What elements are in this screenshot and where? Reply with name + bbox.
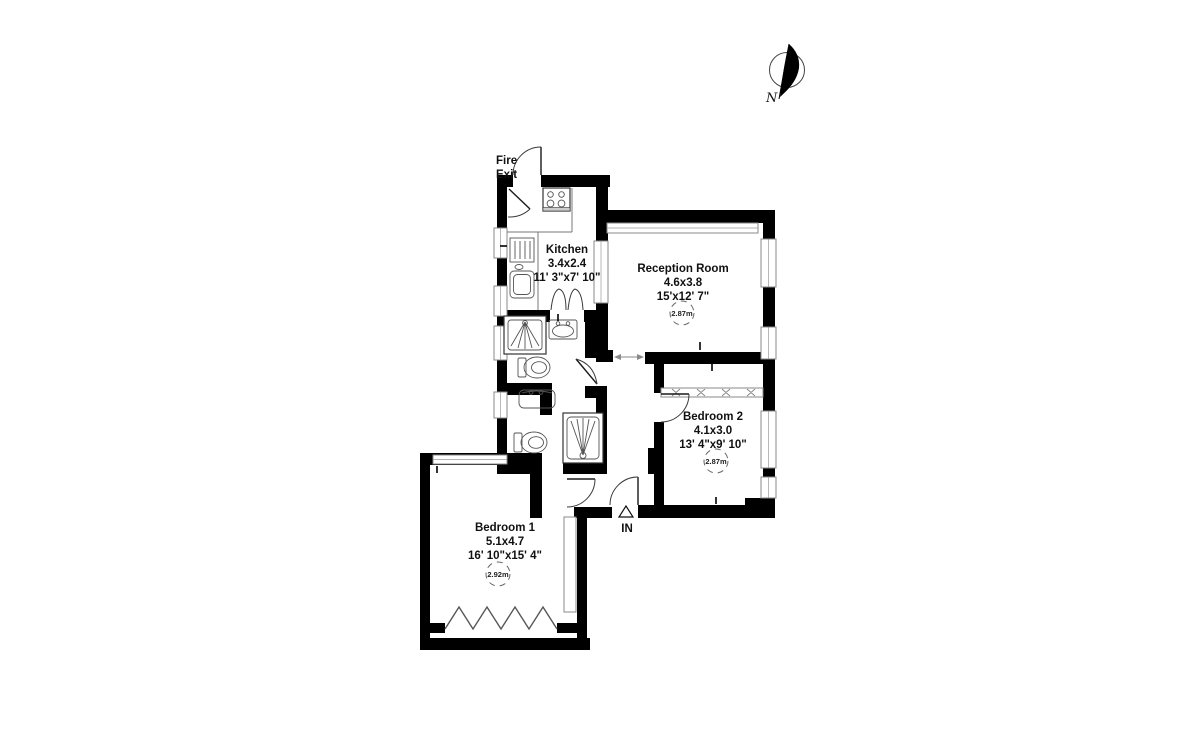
entrance-in-text: IN (621, 523, 633, 535)
shower-icon-upper (504, 316, 546, 354)
bedroom2-imperial: 13' 4"x9' 10" (679, 439, 747, 451)
sink-icon-upper (549, 320, 577, 339)
kitchen-imperial: 11' 3"x7' 10" (534, 272, 601, 284)
reception-opening-arrow (614, 354, 644, 360)
toilet-icon-upper (518, 357, 550, 378)
entrance-label: IN (619, 506, 633, 535)
bedroom2-metric: 4.1x3.0 (694, 425, 732, 437)
bedroom1-ceiling-height: 2.92m (487, 570, 509, 579)
window-reception-right-1 (761, 239, 776, 287)
bedroom1-metric: 5.1x4.7 (486, 536, 524, 548)
north-arrow-icon: N (765, 44, 805, 106)
hall-bathroom-door (576, 359, 597, 384)
toilet-icon-lower (514, 432, 547, 453)
window-bedroom2-right-2 (761, 477, 776, 498)
window-kitchen-left-1 (494, 228, 507, 258)
floor-plan: Kitchen 3.4x2.4 11' 3"x7' 10" Reception … (0, 0, 1200, 742)
bedroom1-label: Bedroom 1 5.1x4.7 16' 10"x15' 4" 2.92m (468, 522, 542, 586)
kitchen-inner-door (508, 189, 530, 217)
entrance-door (610, 477, 638, 505)
window-kitchen-left-2 (494, 286, 507, 316)
kitchen-label: Kitchen 3.4x2.4 11' 3"x7' 10" (534, 244, 601, 284)
bedroom2-name: Bedroom 2 (683, 411, 743, 423)
fire-exit-line1: Fire (496, 155, 517, 167)
entrance-arrow-icon (619, 506, 633, 517)
fire-exit-line2: Exit (496, 169, 517, 181)
bedroom1-imperial: 16' 10"x15' 4" (468, 550, 542, 562)
window-reception-right-2 (761, 327, 776, 359)
reception-ceiling-height: 2.87m (671, 309, 693, 318)
shower-room-door (567, 479, 595, 507)
bay-zigzag-window (445, 607, 557, 629)
window-bedroom1-top (433, 455, 507, 464)
reception-label: Reception Room 4.6x3.8 15'x12' 7" 2.87m (637, 263, 728, 325)
reception-name: Reception Room (637, 263, 728, 275)
upper-bathroom-fixtures (504, 316, 577, 378)
radiator-bedroom1 (564, 517, 576, 612)
lower-bathroom-fixtures (514, 390, 603, 463)
bedroom2-ceiling-height: 2.87m (705, 457, 727, 466)
bedroom2-label: Bedroom 2 4.1x3.0 13' 4"x9' 10" 2.87m (679, 411, 747, 473)
window-reception-top (607, 223, 758, 233)
kitchen-sink-icon (510, 238, 534, 298)
window-bedroom2-right-1 (761, 411, 776, 468)
stove-icon (543, 188, 570, 211)
kitchen-fold-doors (551, 289, 583, 310)
bedroom1-name: Bedroom 1 (475, 522, 536, 534)
kitchen-metric: 3.4x2.4 (548, 258, 587, 270)
north-label: N (765, 91, 778, 106)
reception-metric: 4.6x3.8 (664, 277, 703, 289)
kitchen-name: Kitchen (546, 244, 588, 256)
fire-exit-door (513, 147, 541, 175)
window-bath-left-2 (494, 392, 507, 418)
shower-icon-lower (563, 413, 603, 463)
wardrobe-sliding-doors (661, 388, 763, 397)
